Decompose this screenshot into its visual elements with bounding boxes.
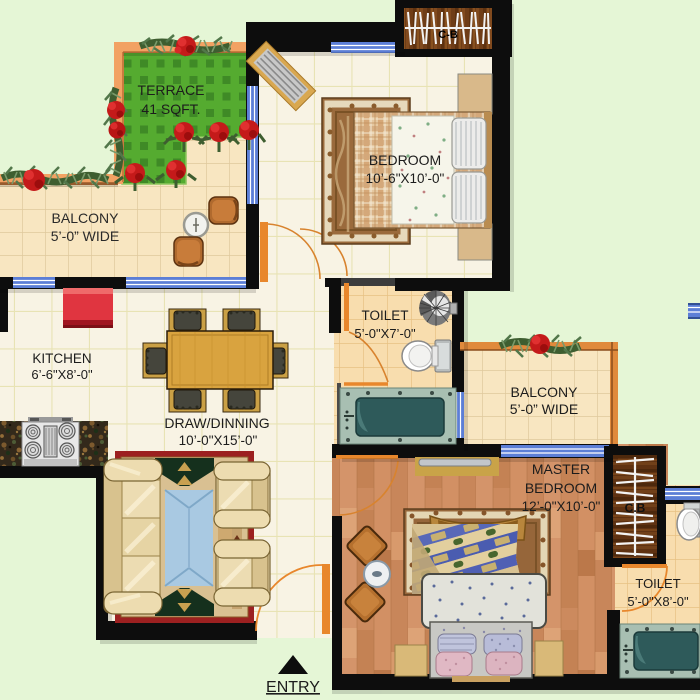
svg-text:41 SQFT.: 41 SQFT.: [141, 101, 200, 117]
svg-text:BALCONY: BALCONY: [511, 384, 579, 400]
svg-text:BALCONY: BALCONY: [52, 210, 120, 226]
svg-text:BEDROOM: BEDROOM: [525, 480, 597, 496]
svg-text:5’-0"X7’-0": 5’-0"X7’-0": [354, 326, 416, 341]
svg-text:DRAW/DINNING: DRAW/DINNING: [164, 415, 269, 431]
svg-text:TERRACE: TERRACE: [138, 82, 205, 98]
svg-text:5’-0” WIDE: 5’-0” WIDE: [51, 228, 119, 244]
svg-text:TOILET: TOILET: [635, 576, 680, 591]
svg-text:5’-0” WIDE: 5’-0” WIDE: [510, 401, 578, 417]
svg-text:TOILET: TOILET: [361, 308, 408, 323]
svg-text:KITCHEN: KITCHEN: [32, 351, 91, 366]
svg-text:C-B: C-B: [438, 29, 458, 41]
svg-text:MASTER: MASTER: [532, 461, 590, 477]
svg-text:6’-6"X8’-0": 6’-6"X8’-0": [31, 367, 93, 382]
svg-text:10’-6"X10’-0": 10’-6"X10’-0": [366, 171, 445, 186]
svg-text:C.B: C.B: [625, 501, 646, 515]
svg-text:12’-0"X10’-0": 12’-0"X10’-0": [522, 499, 601, 514]
svg-text:BEDROOM: BEDROOM: [369, 152, 441, 168]
svg-text:10’-0"X15’-0": 10’-0"X15’-0": [179, 433, 258, 448]
svg-text:5’-0"X8’-0": 5’-0"X8’-0": [627, 594, 689, 609]
svg-text:ENTRY: ENTRY: [266, 679, 320, 696]
